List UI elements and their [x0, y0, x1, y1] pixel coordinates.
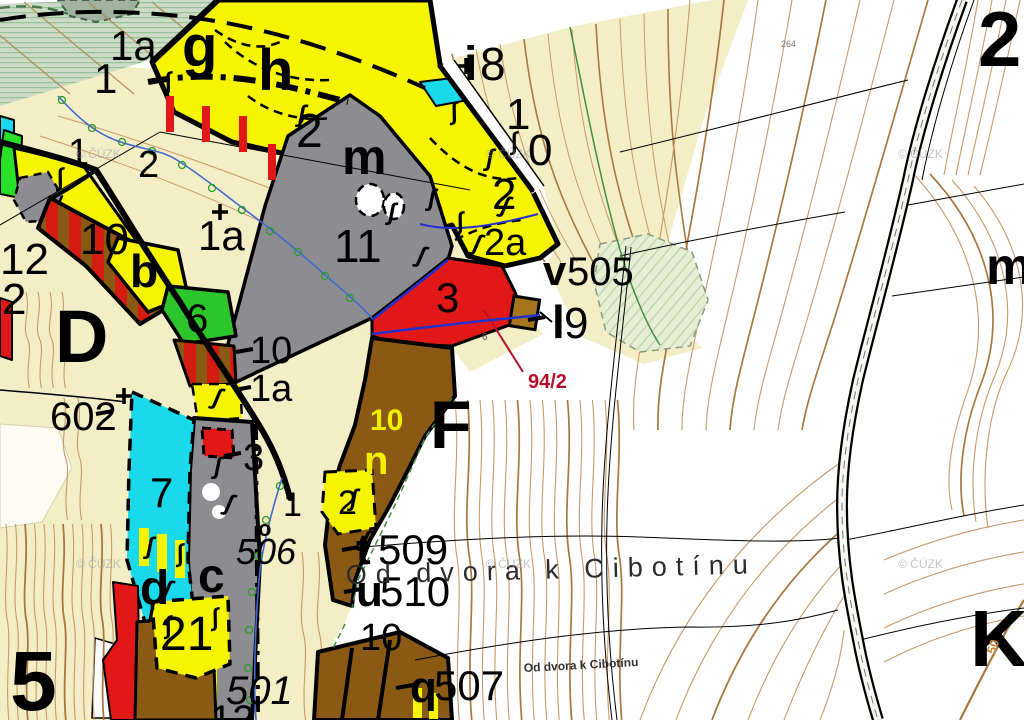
map-label-0: 0 [528, 126, 552, 175]
map-label-m: m [342, 129, 386, 185]
map-label-602: 602 [50, 395, 117, 439]
cuzk-watermark: © ČÚZK [898, 556, 943, 571]
map-label-2: 2 [492, 170, 516, 219]
map-label-3: 3 [243, 437, 264, 479]
map-label-1a: 1a [198, 212, 245, 259]
map-label-506: 506 [236, 531, 297, 572]
map-label-5: 5 [10, 634, 57, 720]
map-label-2: 2 [338, 484, 357, 522]
map-label-942: 94/2 [528, 371, 567, 393]
map-label-10: 10 [360, 617, 402, 659]
map-label-10: 10 [250, 330, 292, 372]
map-label-12: 12 [210, 698, 255, 720]
map-label-2: 2 [296, 105, 323, 158]
map-label-v: v [543, 247, 567, 294]
red-bar-symbol-icon [202, 106, 210, 142]
map-label-1: 1 [283, 486, 302, 524]
cuzk-watermark: © ČÚZK [76, 146, 121, 161]
cadastral-forest-map: ʃʃʃʃʃʃʃʃʃʃʃʃʃʃʃʃʃʃʃʃʃʃʃ 1a1gh2i81022am11… [0, 0, 1024, 720]
map-label-n: n [364, 439, 388, 483]
map-label-8: 8 [480, 38, 506, 90]
cuzk-watermark: © ČÚZK [76, 556, 121, 571]
map-label-q: q [410, 663, 437, 712]
map-label-i: i [464, 38, 477, 91]
map-label-505: 505 [567, 250, 634, 294]
map-label-10: 10 [370, 404, 403, 437]
map-label-c: c [198, 550, 225, 603]
map-label-1: 1 [506, 90, 530, 139]
map-label-9: 9 [564, 299, 588, 348]
map-viewport[interactable]: ʃʃʃʃʃʃʃʃʃʃʃʃʃʃʃʃʃʃʃʃʃʃʃ 1a1gh2i81022am11… [0, 0, 1024, 720]
map-label-2: 2 [978, 0, 1021, 83]
map-label-K: K [970, 594, 1024, 683]
map-label-m: m [986, 238, 1024, 296]
map-label-h: h [258, 38, 293, 103]
red-bar-symbol-icon [268, 144, 276, 180]
map-label-2: 2 [138, 144, 159, 186]
map-label-6: 6 [482, 332, 488, 343]
cuzk-watermark: © ČÚZK [898, 146, 943, 161]
map-label-6: 6 [186, 297, 208, 341]
map-label-g: g [182, 14, 217, 79]
map-label-264: 264 [781, 39, 796, 49]
map-label-2a: 2a [484, 222, 527, 264]
map-label-1a: 1a [250, 368, 293, 410]
map-label-21: 21 [160, 608, 213, 661]
map-label-b: b [130, 245, 158, 297]
map-label-l: l [552, 296, 565, 348]
map-label-F: F [430, 387, 472, 463]
map-label-D: D [55, 295, 108, 378]
red-bar-symbol-icon [239, 116, 247, 152]
cuzk-watermark: © ČÚZK [486, 146, 531, 161]
red-bar-symbol-icon [166, 96, 174, 132]
map-label-2: 2 [2, 275, 26, 324]
map-label-11: 11 [334, 220, 382, 272]
map-label-10: 10 [80, 215, 129, 264]
map-label-3: 3 [436, 274, 459, 321]
map-label-7: 7 [150, 469, 173, 516]
cuzk-watermark: © ČÚZK [486, 556, 531, 571]
map-label-507: 507 [434, 662, 504, 709]
building-symbol [509, 296, 539, 330]
map-label-1: 1 [94, 55, 117, 102]
